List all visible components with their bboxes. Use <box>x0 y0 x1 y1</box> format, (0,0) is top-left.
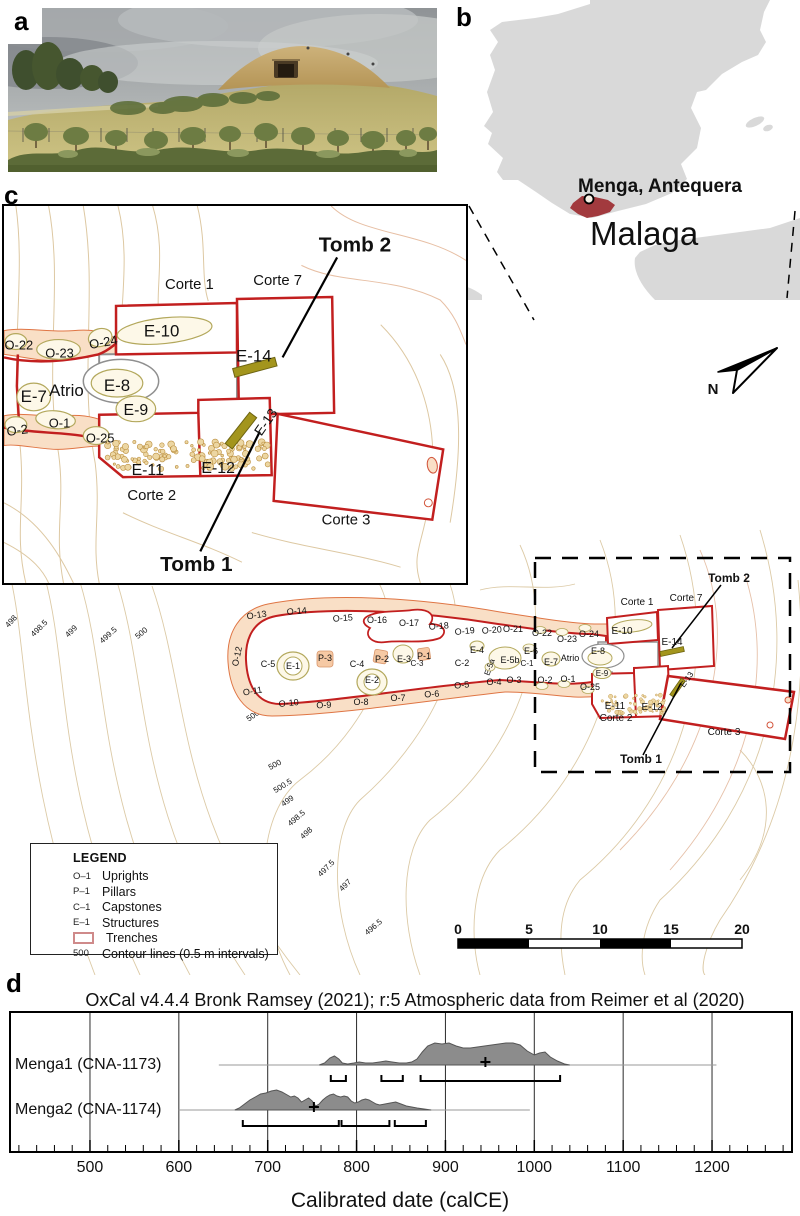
pebble <box>191 458 196 463</box>
plan-label-c-2: C-2 <box>455 658 470 668</box>
mound-entrance <box>272 60 300 78</box>
plan-label-o-21: O-21 <box>503 624 523 634</box>
oxcal-plot-area: 500600700800900100011001200Menga1 (CNA-1… <box>10 1012 792 1176</box>
plan-label-o-18: O-18 <box>428 620 449 631</box>
inset-label-e-7: E-7 <box>21 387 47 406</box>
trench-swatch-icon <box>73 932 94 944</box>
plan-label-p-1: P-1 <box>417 651 431 661</box>
plan-label-o-16: O-16 <box>367 615 387 625</box>
contour-label-498: 498 <box>298 825 314 841</box>
pebble <box>121 456 127 462</box>
site-label: Menga, Antequera <box>578 176 742 197</box>
probability-distribution-1 <box>235 1090 431 1110</box>
pebble <box>133 440 136 443</box>
pebble <box>227 449 231 453</box>
pebble <box>186 464 189 467</box>
pebble <box>153 453 160 460</box>
pebble <box>116 465 120 469</box>
pebble <box>160 449 165 454</box>
plan-label-e-12: E-12 <box>641 702 663 713</box>
inset-label-o-2: O-2 <box>6 421 29 439</box>
legend-item-structures: E–1 Structures <box>73 916 269 930</box>
plan-label-o-15: O-15 <box>332 612 353 623</box>
plan-label-c-5: C-5 <box>261 659 276 669</box>
inset-label-e-9: E-9 <box>124 402 149 419</box>
inset-plan: Tomb 2Corte 1Corte 7E-10E-14O-22O-23O-24… <box>4 206 466 583</box>
plan-label-p-2: P-2 <box>375 654 389 664</box>
legend-item-capstones: C–1 Capstones <box>73 900 269 914</box>
inset-label-o-1: O-1 <box>49 416 70 431</box>
pebble <box>265 462 270 467</box>
plan-label-e-10: E-10 <box>611 626 633 637</box>
pebble <box>192 448 196 452</box>
plan-label-o-20: O-20 <box>481 624 502 635</box>
range-bracket-0-1 <box>381 1075 402 1081</box>
plan-label-o-19: O-19 <box>454 625 475 637</box>
pebble <box>655 694 657 696</box>
inset-label-o-25: O-25 <box>86 431 115 446</box>
pebble <box>191 444 194 447</box>
pebble <box>113 463 115 465</box>
pebble <box>137 457 140 460</box>
plan-label-corte-2: Corte 2 <box>600 713 633 724</box>
inset-label-corte-7: Corte 7 <box>253 273 302 289</box>
inset-label-o-22: O-22 <box>5 337 34 352</box>
legend-item-pillars: P–1 Pillars <box>73 885 269 899</box>
scale-tick-5: 5 <box>525 921 533 937</box>
plan-label-corte-3: Corte 3 <box>708 727 741 738</box>
inset-label-e-8: E-8 <box>104 376 130 395</box>
plan-label-o-1: O-1 <box>560 674 575 684</box>
pebble <box>257 456 262 461</box>
pebble <box>144 452 149 457</box>
range-bracket-1-1 <box>342 1120 390 1126</box>
pebble <box>262 446 266 450</box>
pebble <box>243 445 247 449</box>
north-arrow: N <box>680 330 790 420</box>
plan-label-e-9: E-9 <box>596 669 609 678</box>
pebble <box>642 694 644 696</box>
pebble <box>171 446 177 452</box>
plan-label-o-23: O-23 <box>557 634 577 644</box>
plan-label-o-22: O-22 <box>532 628 552 638</box>
inset-label-tomb-1: Tomb 1 <box>160 553 232 576</box>
pebble <box>105 455 110 460</box>
pillars-symbol: P–1 <box>73 886 97 897</box>
panel-label-b: b <box>456 4 472 30</box>
legend: LEGEND O–1 Uprights P–1 Pillars C–1 Caps… <box>30 843 278 955</box>
pebble <box>639 698 642 701</box>
plan-label-o-4: O-4 <box>486 677 501 687</box>
pebble <box>213 442 219 448</box>
pebble <box>197 448 200 451</box>
plan-label-o-14: O-14 <box>286 605 307 617</box>
tick-label-1200: 1200 <box>694 1159 730 1176</box>
contour-label-497.5: 497.5 <box>316 858 337 879</box>
panel-label-d: d <box>6 970 22 996</box>
plan-label-e-14: E-14 <box>661 637 683 648</box>
tick-label-800: 800 <box>343 1159 370 1176</box>
pebble <box>160 443 165 448</box>
tick-label-600: 600 <box>165 1159 192 1176</box>
structures-symbol: E–1 <box>73 917 97 928</box>
inset-label-o-23: O-23 <box>45 345 74 360</box>
pebble <box>634 694 637 697</box>
plan-label-o-25: O-25 <box>580 682 600 692</box>
photo-panel <box>8 8 437 172</box>
plan-label-o-17: O-17 <box>399 618 419 628</box>
pebble <box>240 457 243 460</box>
uprights-symbol: O–1 <box>73 871 97 882</box>
scale-tick-0: 0 <box>454 921 462 937</box>
plan-label-o-8: O-8 <box>353 697 368 707</box>
range-bracket-1-0 <box>243 1120 339 1126</box>
foreground-strip <box>8 165 437 172</box>
contour-label-498.5: 498.5 <box>286 808 308 828</box>
location-map: Menga, Antequera Malaga <box>440 0 800 300</box>
plan-label-e-1: E-1 <box>286 661 300 671</box>
inset-label-tomb-2: Tomb 2 <box>319 234 391 257</box>
pebble <box>131 458 134 461</box>
pebble <box>175 465 178 468</box>
pebble <box>252 467 256 471</box>
range-bracket-0-0 <box>331 1075 346 1081</box>
pebble <box>221 454 224 457</box>
plan-label-o-6: O-6 <box>424 688 440 699</box>
plan-label-atrio: Atrio <box>561 653 580 663</box>
balearic-islands <box>744 114 773 132</box>
pebble <box>624 694 628 698</box>
pebble <box>198 439 204 445</box>
tick-label-1000: 1000 <box>516 1159 552 1176</box>
plan-label-e-4: E-4 <box>470 645 484 655</box>
pebble <box>122 443 128 449</box>
plan-label-tomb-2: Tomb 2 <box>708 571 750 585</box>
plan-label-corte-7: Corte 7 <box>670 593 703 604</box>
scale-tick-10: 10 <box>592 921 608 937</box>
plan-label-o-7: O-7 <box>390 693 405 703</box>
plan-label-c-4: C-4 <box>350 659 365 669</box>
pebble <box>628 707 632 711</box>
province-label: Malaga <box>590 215 699 252</box>
contour-label-499: 499 <box>280 793 297 808</box>
pebble <box>137 444 142 449</box>
panel-label-a: a <box>14 8 28 34</box>
plan-label-tomb-1: Tomb 1 <box>620 752 662 766</box>
plan-label-e-7: E-7 <box>544 657 558 667</box>
plan-label-o-9: O-9 <box>316 700 332 711</box>
panel-label-c: c <box>4 182 18 208</box>
legend-item-uprights: O–1 Uprights <box>73 869 269 883</box>
contour-label-496.5: 496.5 <box>363 917 385 937</box>
pebble <box>190 452 195 457</box>
pebble <box>614 696 616 698</box>
inset-label-atrio: Atrio <box>49 381 84 400</box>
plan-label-o-24: O-24 <box>579 629 599 639</box>
inset-label-e-10: E-10 <box>144 322 180 341</box>
plan-label-e-3: E-3 <box>397 654 411 664</box>
plan-label-e-8: E-8 <box>591 646 605 656</box>
pebble <box>632 697 634 699</box>
plan-label-e-11: E-11 <box>605 701 626 712</box>
tick-label-700: 700 <box>254 1159 281 1176</box>
legend-item-trenches: Trenches <box>73 931 269 945</box>
inset-label-e-11: E-11 <box>132 462 164 479</box>
figure-container: Menga, Antequera Malaga 498498.5499499.5… <box>0 0 800 1216</box>
legend-item-contours: 500 Contour lines (0.5 m intervals) <box>73 947 269 961</box>
pebble <box>154 447 158 451</box>
contour-label-500: 500 <box>133 625 149 641</box>
plan-label-o-5: O-5 <box>454 679 470 691</box>
pebble <box>208 452 211 455</box>
capstones-symbol: C–1 <box>73 902 97 913</box>
inset-label-corte-2: Corte 2 <box>127 488 176 504</box>
plan-label-o-2: O-2 <box>537 675 552 685</box>
pebble <box>211 450 218 457</box>
plan-label-o-10: O-10 <box>278 697 299 709</box>
tick-label-900: 900 <box>432 1159 459 1176</box>
contour-label-499: 499 <box>63 623 79 639</box>
legend-title: LEGEND <box>73 851 269 865</box>
plan-label-e-6: E-6 <box>524 646 538 656</box>
pebble <box>167 455 171 459</box>
inset-panel: Tomb 2Corte 1Corte 7E-10E-14O-22O-23O-24… <box>2 204 468 585</box>
pebble <box>144 444 149 449</box>
pebble <box>185 441 188 444</box>
series-label-0: Menga1 (CNA-1173) <box>15 1056 161 1073</box>
contour-label-500: 500 <box>267 757 283 771</box>
pebble <box>148 455 152 459</box>
contour-symbol: 500 <box>73 948 97 959</box>
plan-label-e-2: E-2 <box>365 675 379 685</box>
plan-label-corte-1: Corte 1 <box>621 597 654 608</box>
plan-label-p-3: P-3 <box>318 653 332 663</box>
contour-label-497: 497 <box>337 877 353 893</box>
plan-label-o-3: O-3 <box>506 675 521 685</box>
plan-label-c-1: C-1 <box>521 659 534 668</box>
pebble <box>112 456 116 460</box>
inset-label-corte-1: Corte 1 <box>165 277 214 293</box>
contour-label-498.5: 498.5 <box>29 618 50 639</box>
pebble <box>255 446 261 452</box>
pebble <box>601 700 604 703</box>
contour-label-499.5: 499.5 <box>98 625 119 645</box>
series-label-1: Menga2 (CNA-1174) <box>15 1101 161 1118</box>
pebble <box>658 693 662 697</box>
pebble <box>262 453 268 459</box>
range-bracket-0-2 <box>421 1075 560 1081</box>
plan-label-e-5b: E-5b <box>500 655 519 665</box>
scale-tick-15: 15 <box>663 921 679 937</box>
range-bracket-1-2 <box>395 1120 426 1126</box>
pebble <box>636 713 638 715</box>
scale-tick-20: 20 <box>734 921 750 937</box>
pebble <box>125 464 131 470</box>
oxcal-plot: OxCal v4.4.4 Bronk Ramsey (2021); r:5 At… <box>0 970 800 1216</box>
pebble <box>630 702 632 704</box>
inset-label-corte-3: Corte 3 <box>322 513 371 529</box>
tick-label-500: 500 <box>77 1159 104 1176</box>
oxcal-title: OxCal v4.4.4 Bronk Ramsey (2021); r:5 At… <box>85 990 744 1010</box>
contour-label-500.5: 500.5 <box>272 776 294 795</box>
inset-label-e-14: E-14 <box>236 346 272 365</box>
north-label: N <box>708 381 719 398</box>
tick-label-1100: 1100 <box>606 1159 641 1176</box>
inset-label-e-12: E-12 <box>201 460 234 477</box>
pebble <box>608 694 612 698</box>
x-axis-title: Calibrated date (calCE) <box>291 1189 509 1212</box>
scale-bar: 0 5 10 15 20 <box>454 921 750 948</box>
pebble <box>633 702 636 705</box>
